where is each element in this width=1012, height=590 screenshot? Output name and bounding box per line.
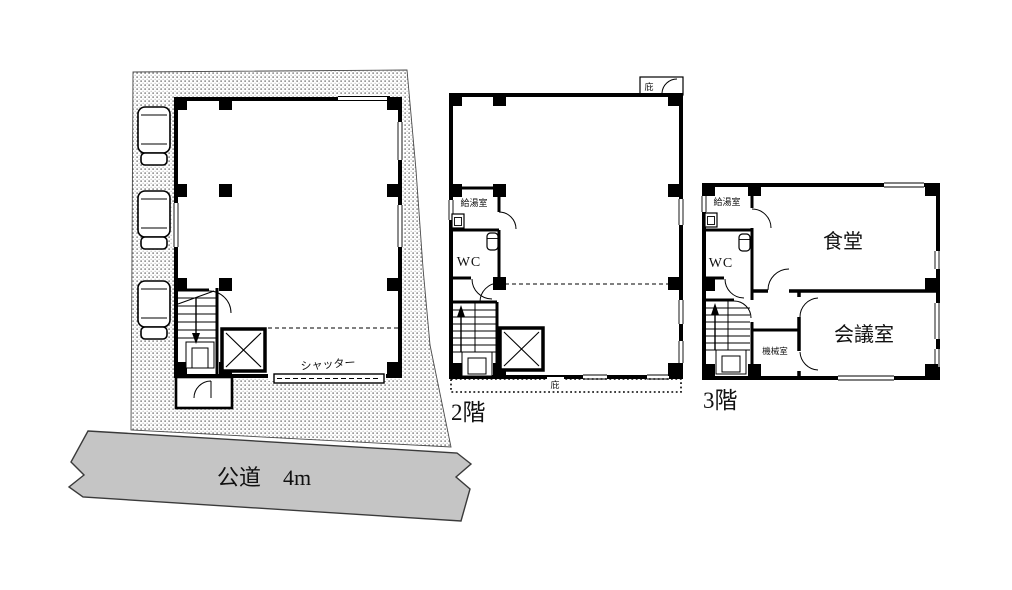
entrance-lobby-1f [176, 377, 232, 408]
road-label: 公道 4m [217, 465, 311, 490]
floor-plan-3f: 給湯室 WC 食堂 会議室 機械室 3階 [700, 181, 941, 413]
machine-room-label: 機械室 [762, 346, 788, 356]
meeting-room-label: 会議室 [834, 323, 894, 346]
toilet-icon-3f [739, 234, 750, 251]
parking-car-1 [138, 107, 170, 165]
building-outline-3f [704, 185, 938, 378]
canopy-top-label-2f: 庇 [644, 81, 653, 92]
elevator-2f [500, 328, 543, 370]
sink-icon-2f [452, 214, 464, 228]
parking-car-3 [138, 281, 170, 339]
canopy-bottom-2f [451, 379, 681, 392]
kitchenette-label-3f: 給湯室 [713, 196, 740, 207]
wc-label-2f: WC [457, 255, 482, 270]
building-outline-1f [176, 99, 400, 376]
site-plan-1f: シャッター [131, 70, 451, 447]
elevator-1f [222, 329, 265, 371]
sink-icon-3f [705, 213, 717, 227]
kitchenette-label-2f: 給湯室 [460, 197, 487, 208]
parking-car-2 [138, 191, 170, 249]
building-outline-2f [451, 95, 681, 377]
floor-label-2f: 2階 [451, 400, 486, 425]
canopy-bottom-label-2f: 庇 [550, 379, 559, 390]
floor-plan-2f: 庇 [447, 77, 685, 425]
shutter-1f [268, 371, 386, 383]
floor-plan-drawing: シャッター 公道 4m 庇 [0, 0, 1012, 590]
floor-plan-page: シャッター 公道 4m 庇 [0, 0, 1012, 590]
wc-label-3f: WC [709, 256, 734, 271]
dining-room-label: 食堂 [823, 230, 863, 253]
toilet-icon-2f [487, 233, 498, 250]
floor-label-3f: 3階 [703, 388, 738, 413]
